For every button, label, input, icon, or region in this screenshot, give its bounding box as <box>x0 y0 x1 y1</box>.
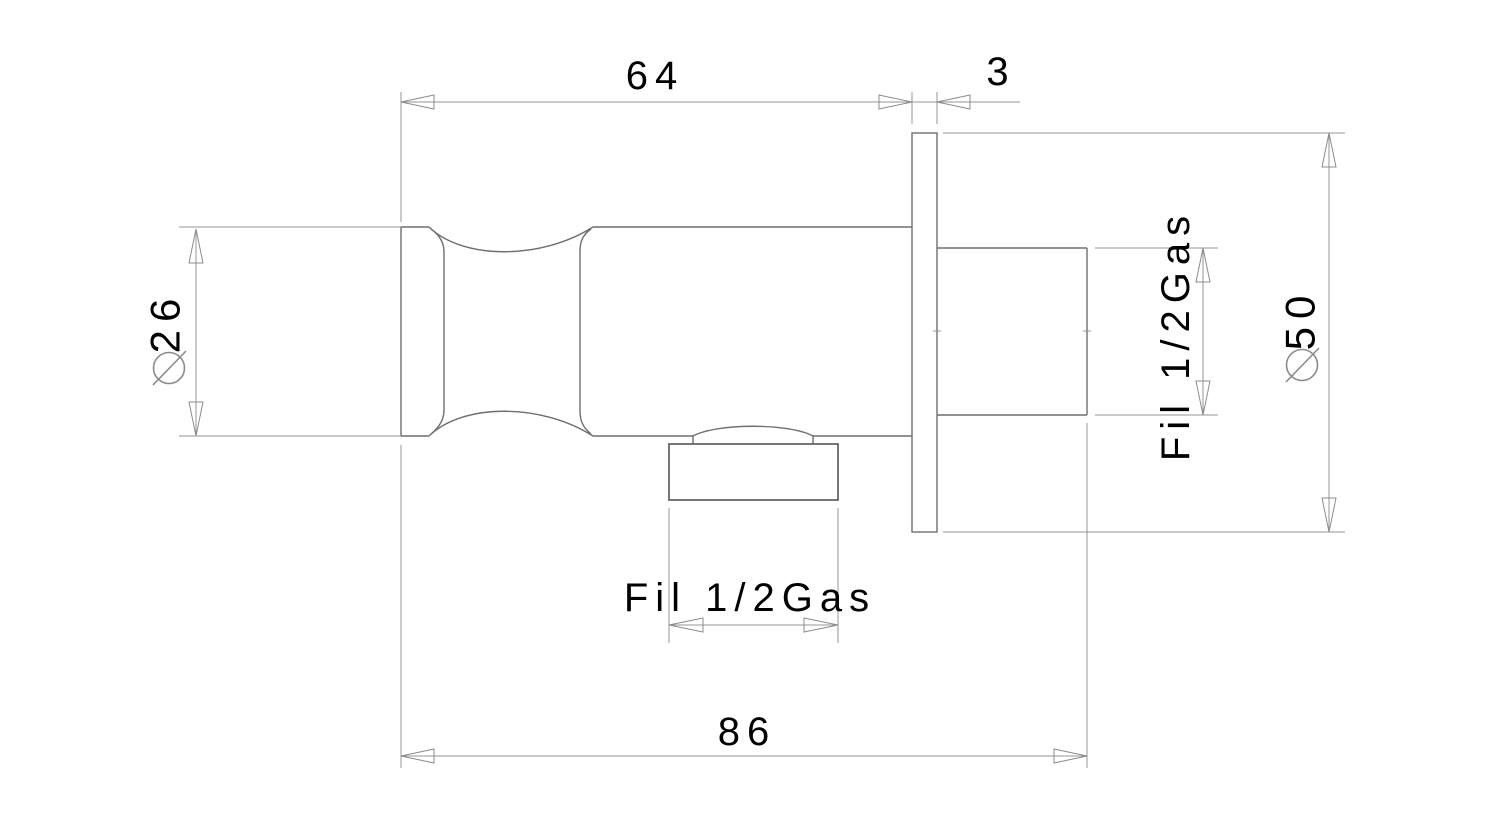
inlet-thread-stub <box>933 248 1091 415</box>
dimension-inlet-thread: Fil 1/2Gas <box>1095 209 1218 461</box>
outlet-thread-collar <box>669 444 838 500</box>
dimension-body-length-64: 64 <box>401 54 912 222</box>
pipe-body <box>593 227 912 436</box>
handle-top-saddle-arc <box>429 227 593 252</box>
dimension-label-3: 3 <box>986 50 1015 94</box>
dimension-label-64: 64 <box>626 54 685 98</box>
dimension-plate-diameter-50: 50 <box>943 133 1345 532</box>
handle-inner-right-edge <box>580 229 591 434</box>
dimension-plate-thickness-3: 3 <box>912 50 1020 124</box>
dimension-body-diameter-26: 26 <box>142 227 402 436</box>
valve-body-outline <box>401 133 1091 532</box>
outlet-intersection-arc <box>693 426 813 436</box>
dimension-outlet-thread: Fil 1/2Gas <box>624 508 876 643</box>
bottom-outlet <box>669 426 838 500</box>
technical-drawing-page: 64 3 26 <box>0 0 1500 828</box>
dimension-label-86: 86 <box>718 710 777 754</box>
inlet-thread-label: Fil 1/2Gas <box>1154 209 1198 461</box>
dimension-label-50: 50 <box>1277 288 1324 351</box>
technical-drawing-canvas: 64 3 26 <box>0 0 1500 828</box>
outlet-thread-label: Fil 1/2Gas <box>624 576 876 620</box>
handle-profile <box>401 227 593 436</box>
diameter-symbol-icon <box>153 351 186 385</box>
handle-bottom-saddle-arc <box>429 411 593 436</box>
handle-inner-left-edge <box>431 229 444 434</box>
dimension-label-26: 26 <box>142 291 189 354</box>
wall-plate <box>912 133 937 532</box>
diameter-symbol-icon <box>1286 348 1319 382</box>
